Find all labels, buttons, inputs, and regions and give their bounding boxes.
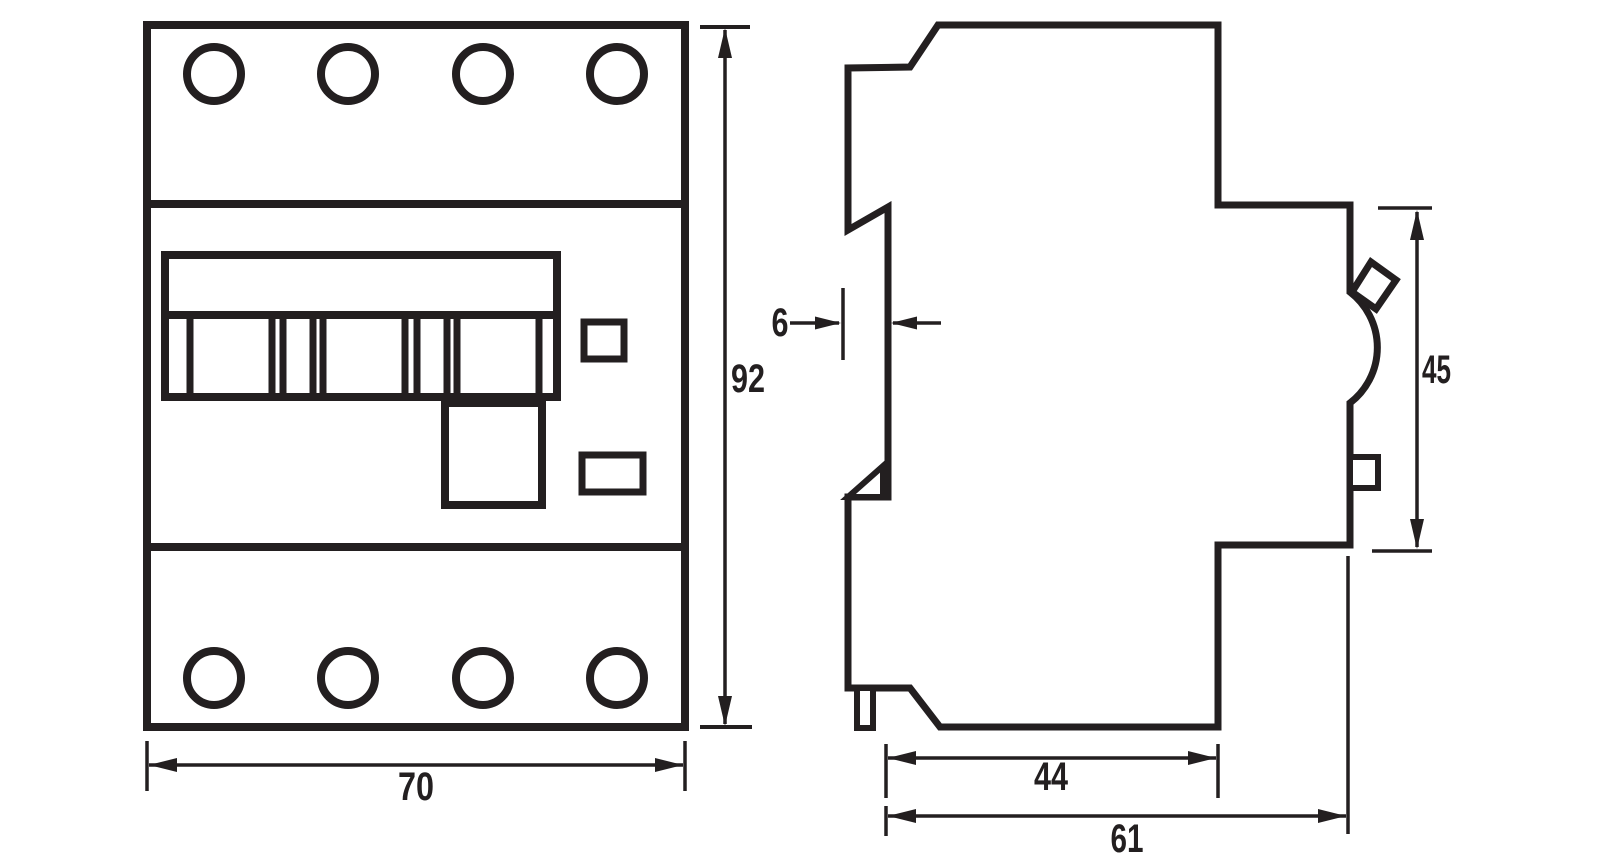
indicator-window: [584, 322, 624, 359]
arrowhead-down: [718, 696, 732, 726]
dimension-front-width: 70: [147, 741, 685, 809]
arrowhead-up: [718, 28, 732, 58]
front-view: [147, 25, 685, 727]
terminal-hole: [590, 47, 644, 101]
dimensional-drawing: 92 70 6 44 61: [0, 0, 1600, 858]
dimension-front-height: 92: [700, 27, 765, 727]
terminal-hole: [590, 651, 644, 705]
side-test-button: [1350, 457, 1378, 488]
terminal-hole: [187, 651, 241, 705]
rail-recess-label: 6: [772, 301, 789, 345]
arrowhead-left: [888, 809, 916, 823]
front-section-height-label: 45: [1422, 348, 1451, 392]
label-window: [582, 455, 643, 492]
body-depth-label: 44: [1034, 755, 1069, 799]
front-width-label: 70: [398, 765, 434, 809]
terminal-hole: [321, 47, 375, 101]
arrowhead-right: [1188, 751, 1216, 765]
terminal-hole: [456, 47, 510, 101]
din-clip-hook: [848, 466, 883, 497]
terminal-hole: [456, 651, 510, 705]
dimension-front-section-height: 45: [1372, 208, 1451, 551]
arrowhead-right: [1318, 809, 1346, 823]
arrowhead-down: [1410, 519, 1424, 549]
dimension-body-depth: 44: [886, 744, 1218, 799]
switch-bank-outline: [165, 255, 557, 397]
front-height-label: 92: [731, 357, 765, 401]
switch-bank: [165, 255, 557, 397]
test-button: [445, 403, 542, 505]
arrowhead-right: [655, 758, 683, 772]
terminal-hole: [187, 47, 241, 101]
arrowhead-left: [888, 751, 916, 765]
din-latch-pin: [857, 688, 873, 728]
arrowhead-left: [149, 758, 177, 772]
overall-depth-label: 61: [1111, 817, 1144, 858]
side-body-outline: [848, 25, 1377, 727]
arrowhead-right: [815, 317, 841, 330]
terminal-hole: [321, 651, 375, 705]
technical-drawing-page: 92 70 6 44 61: [0, 0, 1600, 858]
arrowhead-up: [1410, 210, 1424, 240]
side-view: [848, 25, 1396, 728]
